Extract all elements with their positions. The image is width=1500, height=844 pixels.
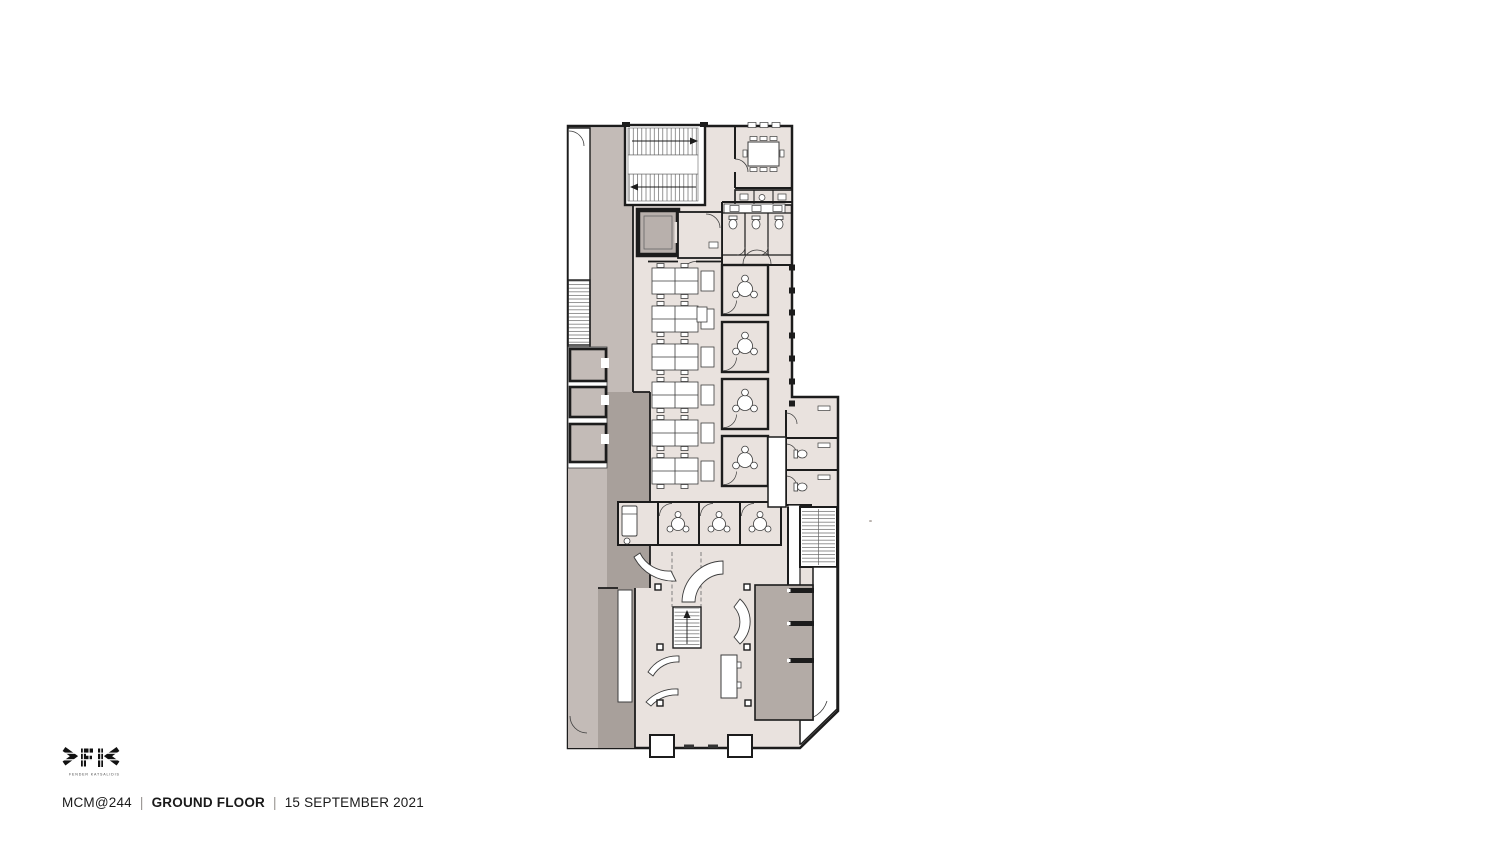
fk-logo: FENDER KATSALIDIS bbox=[62, 744, 120, 778]
floor-plan-svg bbox=[560, 110, 860, 760]
fire-stair bbox=[568, 128, 590, 347]
logo-tagline: FENDER KATSALIDIS bbox=[69, 773, 120, 777]
first-aid-room bbox=[618, 502, 658, 545]
sink bbox=[740, 194, 748, 200]
column bbox=[655, 584, 661, 590]
project-name: MCM@244 bbox=[62, 795, 132, 810]
main-stair bbox=[622, 122, 708, 205]
meeting-table bbox=[748, 142, 779, 166]
column bbox=[657, 700, 663, 706]
east-wing-stair bbox=[800, 507, 837, 567]
separator: | bbox=[140, 795, 144, 810]
elevator bbox=[638, 210, 680, 255]
sheet-caption: MCM@244|GROUND FLOOR|15 SEPTEMBER 2021 bbox=[62, 795, 424, 810]
sheet-name: GROUND FLOOR bbox=[152, 795, 265, 810]
paper-speck bbox=[869, 520, 872, 522]
column bbox=[744, 584, 750, 590]
wc-icon bbox=[729, 216, 737, 229]
title-block: FENDER KATSALIDIS MCM@244|GROUND FLOOR|1… bbox=[62, 744, 424, 810]
column bbox=[744, 644, 750, 650]
lobby-stair bbox=[673, 607, 701, 648]
meeting-pods-south bbox=[658, 502, 781, 545]
lightwell bbox=[768, 437, 786, 507]
wc-icon bbox=[794, 450, 807, 458]
column bbox=[657, 644, 663, 650]
bed bbox=[622, 506, 637, 536]
lift-core bbox=[755, 585, 814, 720]
page: FENDER KATSALIDIS MCM@244|GROUND FLOOR|1… bbox=[0, 0, 1500, 844]
sheet-date: 15 SEPTEMBER 2021 bbox=[285, 795, 424, 810]
floor-plan bbox=[560, 110, 860, 760]
wc-icon bbox=[775, 216, 783, 229]
side-table bbox=[697, 307, 707, 322]
stair-treads bbox=[568, 280, 590, 345]
wc-icon bbox=[752, 216, 760, 229]
wc-icon bbox=[794, 483, 807, 491]
store-room bbox=[678, 212, 722, 258]
lobby-screen-wall bbox=[618, 590, 632, 702]
column bbox=[745, 700, 751, 706]
west-alcove-rooms bbox=[568, 347, 609, 468]
fk-logo-mark bbox=[62, 746, 120, 769]
separator: | bbox=[273, 795, 277, 810]
